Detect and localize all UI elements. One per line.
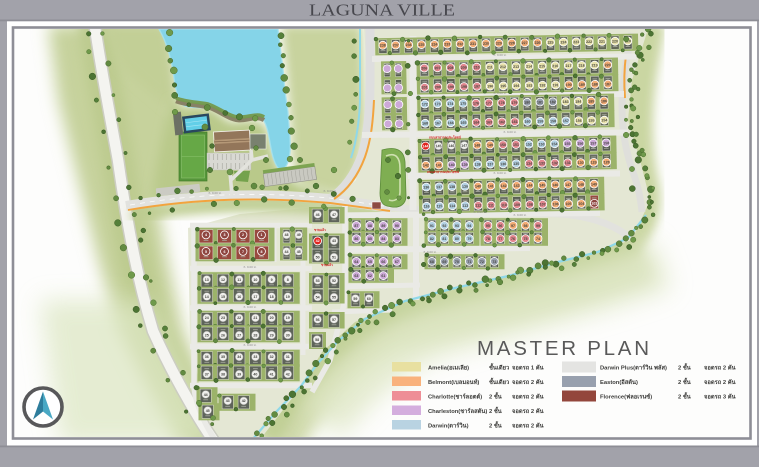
svg-text:114: 114 — [449, 204, 455, 208]
svg-text:30: 30 — [286, 334, 290, 338]
svg-text:86: 86 — [354, 237, 358, 241]
svg-text:182: 182 — [550, 100, 556, 104]
svg-text:6: 6 — [224, 250, 226, 254]
svg-text:129: 129 — [591, 161, 597, 165]
svg-text:68: 68 — [430, 260, 434, 264]
svg-text:95: 95 — [486, 224, 490, 228]
svg-text:99: 99 — [536, 224, 540, 228]
svg-text:149: 149 — [487, 143, 493, 147]
svg-text:176: 176 — [473, 102, 479, 106]
svg-text:จอดรถ 2 คัน: จอดรถ 2 คัน — [512, 392, 544, 400]
svg-text:110: 110 — [501, 203, 507, 207]
svg-text:238: 238 — [380, 44, 386, 48]
svg-text:77: 77 — [498, 237, 502, 241]
svg-text:144: 144 — [423, 144, 429, 148]
svg-text:148: 148 — [474, 143, 480, 147]
svg-text:106: 106 — [553, 202, 559, 206]
svg-text:25: 25 — [205, 334, 209, 338]
svg-text:211: 211 — [487, 65, 493, 69]
svg-text:Charlotte(ชาร์ลอตต์): Charlotte(ชาร์ลอตต์) — [428, 392, 482, 400]
svg-text:66: 66 — [381, 260, 385, 264]
svg-text:150: 150 — [500, 143, 506, 147]
svg-text:43: 43 — [332, 239, 336, 243]
svg-text:80: 80 — [455, 237, 459, 241]
svg-text:87: 87 — [354, 224, 358, 228]
svg-text:Florence(ฟลอเรนซ์): Florence(ฟลอเรนซ์) — [600, 392, 652, 400]
svg-text:Charleston(ชาร์ลสตัน): Charleston(ชาร์ลสตัน) — [428, 407, 487, 415]
svg-text:166: 166 — [448, 121, 454, 125]
svg-text:ถ. 9.00 ม.: ถ. 9.00 ม. — [244, 305, 257, 309]
svg-text:12: 12 — [221, 278, 225, 282]
svg-text:112: 112 — [475, 204, 481, 208]
svg-text:151: 151 — [513, 143, 519, 147]
svg-text:142: 142 — [501, 184, 507, 188]
svg-text:172: 172 — [422, 102, 428, 106]
svg-text:164: 164 — [473, 121, 479, 125]
svg-text:18: 18 — [270, 295, 274, 299]
svg-text:1: 1 — [261, 233, 263, 237]
svg-text:144: 144 — [527, 184, 533, 188]
svg-text:38: 38 — [221, 373, 225, 377]
svg-text:111: 111 — [488, 203, 494, 207]
svg-text:177: 177 — [486, 101, 492, 105]
svg-text:34: 34 — [237, 355, 241, 359]
svg-text:MASTER PLAN: MASTER PLAN — [477, 337, 649, 360]
svg-text:200: 200 — [435, 85, 441, 89]
svg-text:175: 175 — [460, 102, 466, 106]
svg-text:147: 147 — [461, 144, 467, 148]
svg-text:35: 35 — [221, 355, 225, 359]
svg-text:221: 221 — [599, 40, 605, 44]
svg-text:156: 156 — [577, 142, 583, 146]
svg-text:15: 15 — [221, 295, 225, 299]
svg-text:237: 237 — [393, 43, 399, 47]
svg-text:65: 65 — [368, 260, 372, 264]
svg-text:136: 136 — [423, 185, 429, 189]
svg-text:168: 168 — [422, 122, 428, 126]
svg-text:53: 53 — [316, 279, 320, 283]
svg-text:47: 47 — [332, 213, 336, 217]
svg-text:178: 178 — [499, 101, 505, 105]
svg-text:49: 49 — [297, 233, 301, 237]
svg-text:22: 22 — [237, 316, 241, 320]
svg-text:136: 136 — [500, 162, 506, 166]
svg-text:105: 105 — [565, 202, 571, 206]
svg-text:213: 213 — [513, 65, 519, 69]
svg-text:32: 32 — [270, 355, 274, 359]
svg-text:24: 24 — [205, 316, 209, 320]
svg-text:158: 158 — [603, 141, 609, 145]
svg-text:60: 60 — [367, 297, 371, 301]
svg-text:ถ. 9.00 ม.: ถ. 9.00 ม. — [244, 343, 257, 347]
svg-text:173: 173 — [435, 102, 441, 106]
svg-text:157: 157 — [590, 141, 596, 145]
svg-text:88: 88 — [368, 224, 372, 228]
svg-text:61: 61 — [381, 274, 385, 278]
svg-text:67: 67 — [395, 260, 399, 264]
svg-text:189: 189 — [579, 83, 585, 87]
svg-text:179: 179 — [511, 101, 517, 105]
svg-text:174: 174 — [447, 102, 453, 106]
svg-text:56: 56 — [316, 318, 320, 322]
svg-text:10: 10 — [253, 278, 257, 282]
svg-text:37: 37 — [205, 373, 209, 377]
svg-text:ถนนสาธารณประโยชน์: ถนนสาธารณประโยชน์ — [429, 135, 462, 140]
svg-text:3: 3 — [224, 233, 226, 237]
svg-text:2: 2 — [242, 233, 244, 237]
svg-text:83: 83 — [395, 237, 399, 241]
svg-text:162: 162 — [499, 120, 505, 124]
svg-text:138: 138 — [475, 163, 481, 167]
svg-text:130: 130 — [578, 161, 584, 165]
svg-text:183: 183 — [563, 100, 569, 104]
svg-text:128: 128 — [604, 160, 610, 164]
svg-text:จอดรถ 1 คัน: จอดรถ 1 คัน — [512, 363, 544, 371]
svg-text:233: 233 — [444, 42, 450, 46]
svg-text:220: 220 — [605, 63, 611, 67]
svg-text:132: 132 — [552, 161, 558, 165]
svg-text:134: 134 — [526, 162, 532, 166]
svg-text:ถ. 9.00 ม.: ถ. 9.00 ม. — [324, 189, 337, 193]
svg-text:76: 76 — [511, 237, 515, 241]
svg-text:ถ. 9.00 ม.: ถ. 9.00 ม. — [244, 265, 257, 269]
svg-text:11: 11 — [237, 278, 241, 282]
svg-text:42: 42 — [316, 239, 320, 243]
svg-text:Darwin Plus(ดาร์วิน พลัส): Darwin Plus(ดาร์วิน พลัส) — [600, 363, 667, 371]
svg-text:146: 146 — [448, 144, 454, 148]
svg-text:234: 234 — [431, 43, 437, 47]
svg-text:14: 14 — [205, 295, 209, 299]
svg-text:138: 138 — [449, 185, 455, 189]
svg-text:จอดรถ 2 คัน: จอดรถ 2 คัน — [512, 407, 544, 415]
svg-text:146: 146 — [552, 183, 558, 187]
svg-text:46: 46 — [316, 213, 320, 217]
svg-text:133: 133 — [539, 161, 545, 165]
svg-text:165: 165 — [461, 121, 467, 125]
svg-text:154: 154 — [601, 118, 607, 122]
svg-text:201: 201 — [422, 86, 428, 90]
svg-text:42: 42 — [286, 373, 290, 377]
svg-text:196: 196 — [487, 84, 493, 88]
svg-text:161: 161 — [512, 120, 518, 124]
svg-text:70: 70 — [455, 260, 459, 264]
svg-text:92: 92 — [442, 224, 446, 228]
svg-text:5: 5 — [205, 250, 207, 254]
svg-text:63: 63 — [354, 274, 358, 278]
svg-text:147: 147 — [565, 183, 571, 187]
svg-text:4: 4 — [205, 233, 207, 237]
svg-text:192: 192 — [539, 83, 545, 87]
svg-text:36: 36 — [205, 355, 209, 359]
svg-text:137: 137 — [487, 162, 493, 166]
svg-text:97: 97 — [511, 224, 515, 228]
svg-text:228: 228 — [509, 41, 515, 45]
svg-text:45: 45 — [297, 250, 301, 254]
svg-text:193: 193 — [526, 84, 532, 88]
svg-text:142: 142 — [423, 163, 429, 167]
svg-text:44: 44 — [204, 393, 208, 397]
svg-text:115: 115 — [437, 204, 443, 208]
svg-text:157: 157 — [563, 119, 569, 123]
svg-text:39: 39 — [237, 373, 241, 377]
svg-text:64: 64 — [354, 260, 358, 264]
svg-text:58: 58 — [315, 338, 319, 342]
svg-text:225: 225 — [548, 41, 554, 45]
svg-text:จอดรถ 3 คัน: จอดรถ 3 คัน — [704, 392, 736, 400]
svg-text:84: 84 — [381, 237, 385, 241]
svg-text:167: 167 — [435, 121, 441, 125]
svg-text:231: 231 — [470, 42, 476, 46]
svg-text:216: 216 — [552, 64, 558, 68]
svg-text:194: 194 — [513, 84, 519, 88]
svg-text:69: 69 — [442, 260, 446, 264]
svg-text:55: 55 — [332, 296, 336, 300]
svg-text:180: 180 — [524, 101, 530, 105]
svg-text:ถ. 9.00 ม.: ถ. 9.00 ม. — [209, 191, 222, 195]
svg-text:82: 82 — [430, 237, 434, 241]
svg-text:31: 31 — [286, 355, 290, 359]
svg-text:91: 91 — [430, 224, 434, 228]
svg-text:227: 227 — [522, 41, 528, 45]
svg-text:59: 59 — [353, 297, 357, 301]
svg-text:184: 184 — [575, 100, 581, 104]
svg-text:43: 43 — [226, 399, 230, 403]
svg-text:57: 57 — [332, 318, 336, 322]
svg-text:108: 108 — [527, 203, 533, 207]
svg-text:145: 145 — [435, 144, 441, 148]
svg-text:50: 50 — [316, 256, 320, 260]
svg-text:116: 116 — [424, 204, 430, 208]
svg-text:224: 224 — [560, 40, 566, 44]
svg-text:89: 89 — [381, 224, 385, 228]
svg-text:ถ. 9.00 ม.: ถ. 9.00 ม. — [474, 210, 487, 214]
svg-text:42: 42 — [242, 399, 246, 403]
svg-text:20: 20 — [270, 316, 274, 320]
svg-text:28: 28 — [253, 334, 257, 338]
svg-text:75: 75 — [524, 237, 528, 241]
svg-text:113: 113 — [462, 204, 468, 208]
svg-text:21: 21 — [253, 316, 257, 320]
svg-text:8: 8 — [261, 250, 263, 254]
svg-text:51: 51 — [332, 256, 336, 260]
svg-text:230: 230 — [483, 42, 489, 46]
svg-text:ถ. 9.00 ม.: ถ. 9.00 ม. — [494, 171, 507, 175]
svg-text:85: 85 — [368, 237, 372, 241]
svg-text:9: 9 — [271, 278, 273, 282]
svg-text:229: 229 — [496, 42, 502, 46]
svg-text:LAGUNA VILLE: LAGUNA VILLE — [309, 1, 455, 20]
svg-text:155: 155 — [588, 119, 594, 123]
svg-text:145: 145 — [539, 183, 545, 187]
svg-text:197: 197 — [474, 85, 480, 89]
svg-text:17: 17 — [253, 295, 257, 299]
svg-text:23: 23 — [221, 316, 225, 320]
svg-text:232: 232 — [457, 42, 463, 46]
svg-text:187: 187 — [605, 82, 611, 86]
svg-text:45: 45 — [206, 409, 210, 413]
svg-text:141: 141 — [436, 163, 442, 167]
svg-text:78: 78 — [486, 237, 490, 241]
svg-text:198: 198 — [461, 85, 467, 89]
svg-text:103: 103 — [591, 202, 597, 206]
svg-text:140: 140 — [475, 184, 481, 188]
svg-text:ถ. 9.00 ม.: ถ. 9.00 ม. — [494, 91, 507, 95]
svg-text:ถ. 9.00 ม.: ถ. 9.00 ม. — [494, 53, 507, 57]
svg-text:207: 207 — [434, 66, 440, 70]
svg-text:223: 223 — [573, 40, 579, 44]
svg-text:Easton(อีสตัน): Easton(อีสตัน) — [600, 378, 638, 386]
svg-text:159: 159 — [537, 119, 543, 123]
svg-text:52: 52 — [332, 279, 336, 283]
svg-text:ขายแล้ว: ขายแล้ว — [321, 262, 333, 267]
svg-text:74: 74 — [536, 237, 540, 241]
svg-text:จอดรถ 2 คัน: จอดรถ 2 คัน — [512, 421, 544, 429]
svg-text:199: 199 — [448, 85, 454, 89]
svg-text:109: 109 — [514, 203, 520, 207]
svg-text:214: 214 — [526, 65, 532, 69]
svg-text:72: 72 — [480, 260, 484, 264]
svg-text:71: 71 — [467, 260, 471, 264]
svg-text:208: 208 — [447, 66, 453, 70]
svg-text:54: 54 — [316, 296, 320, 300]
svg-text:190: 190 — [566, 83, 572, 87]
svg-text:210: 210 — [474, 65, 480, 69]
svg-text:212: 212 — [500, 65, 506, 69]
svg-text:219: 219 — [592, 63, 598, 67]
svg-text:13: 13 — [205, 278, 209, 282]
svg-text:181: 181 — [537, 100, 543, 104]
svg-text:158: 158 — [550, 119, 556, 123]
svg-text:236: 236 — [406, 43, 412, 47]
svg-text:16: 16 — [237, 295, 241, 299]
svg-text:Amelia(อเมเลีย): Amelia(อเมเลีย) — [428, 364, 469, 371]
svg-text:217: 217 — [565, 64, 571, 68]
svg-text:44: 44 — [285, 250, 289, 254]
svg-text:209: 209 — [461, 66, 467, 70]
svg-text:ถนนสาธารณประโยชน์: ถนนสาธารณประโยชน์ — [427, 169, 460, 174]
svg-text:33: 33 — [253, 355, 257, 359]
svg-text:29: 29 — [270, 334, 274, 338]
svg-text:79: 79 — [467, 237, 471, 241]
svg-text:19: 19 — [286, 316, 290, 320]
svg-text:94: 94 — [467, 224, 471, 228]
svg-text:98: 98 — [524, 224, 528, 228]
svg-text:48: 48 — [285, 233, 289, 237]
svg-text:154: 154 — [551, 142, 557, 146]
svg-text:41: 41 — [270, 373, 274, 377]
svg-text:จอดรถ 2 คัน: จอดรถ 2 คัน — [704, 378, 736, 386]
svg-text:226: 226 — [535, 41, 541, 45]
svg-text:Belmont(เบลมอนท์): Belmont(เบลมอนท์) — [428, 378, 479, 386]
svg-text:ถ. 9.00 ม.: ถ. 9.00 ม. — [514, 213, 527, 217]
svg-text:131: 131 — [565, 161, 571, 165]
svg-text:73: 73 — [492, 260, 496, 264]
svg-text:141: 141 — [488, 184, 494, 188]
svg-text:155: 155 — [564, 142, 570, 146]
svg-text:153: 153 — [539, 142, 545, 146]
svg-text:156: 156 — [576, 119, 582, 123]
svg-text:Darwin(ดาร์วิน): Darwin(ดาร์วิน) — [428, 421, 469, 429]
svg-text:81: 81 — [442, 237, 446, 241]
svg-text:137: 137 — [436, 185, 442, 189]
svg-text:27: 27 — [237, 334, 241, 338]
svg-text:40: 40 — [253, 373, 257, 377]
svg-text:ขายแล้ว: ขายแล้ว — [314, 227, 326, 232]
svg-text:62: 62 — [368, 274, 372, 278]
svg-text:152: 152 — [526, 143, 532, 147]
svg-text:188: 188 — [592, 83, 598, 87]
svg-text:จอดรถ 2 คัน: จอดรถ 2 คัน — [512, 378, 544, 386]
svg-text:96: 96 — [498, 224, 502, 228]
svg-text:140: 140 — [449, 163, 455, 167]
svg-text:93: 93 — [455, 224, 459, 228]
svg-text:143: 143 — [514, 184, 520, 188]
svg-text:จอดรถ 2 คัน: จอดรถ 2 คัน — [704, 363, 736, 371]
svg-text:8: 8 — [287, 278, 289, 282]
svg-text:195: 195 — [500, 84, 506, 88]
svg-text:ถ. 9.00 ม.: ถ. 9.00 ม. — [424, 250, 437, 254]
svg-text:26: 26 — [221, 334, 225, 338]
svg-text:185: 185 — [588, 100, 594, 104]
svg-text:218: 218 — [579, 64, 585, 68]
svg-text:191: 191 — [553, 83, 559, 87]
svg-text:222: 222 — [586, 40, 592, 44]
svg-text:160: 160 — [524, 120, 530, 124]
svg-text:7: 7 — [242, 250, 244, 254]
svg-text:149: 149 — [591, 182, 597, 186]
svg-text:ถ. 9.00 ม.: ถ. 9.00 ม. — [504, 130, 517, 134]
svg-text:215: 215 — [539, 64, 545, 68]
svg-text:19: 19 — [286, 295, 290, 299]
svg-text:235: 235 — [418, 43, 424, 47]
svg-text:163: 163 — [486, 120, 492, 124]
svg-text:90: 90 — [395, 224, 399, 228]
svg-text:148: 148 — [578, 183, 584, 187]
svg-text:220: 220 — [612, 39, 618, 43]
svg-text:107: 107 — [540, 202, 546, 206]
svg-text:139: 139 — [462, 185, 468, 189]
svg-text:135: 135 — [513, 162, 519, 166]
svg-text:139: 139 — [462, 163, 468, 167]
svg-text:104: 104 — [578, 202, 584, 206]
svg-text:186: 186 — [601, 99, 607, 103]
svg-text:206: 206 — [421, 66, 427, 70]
